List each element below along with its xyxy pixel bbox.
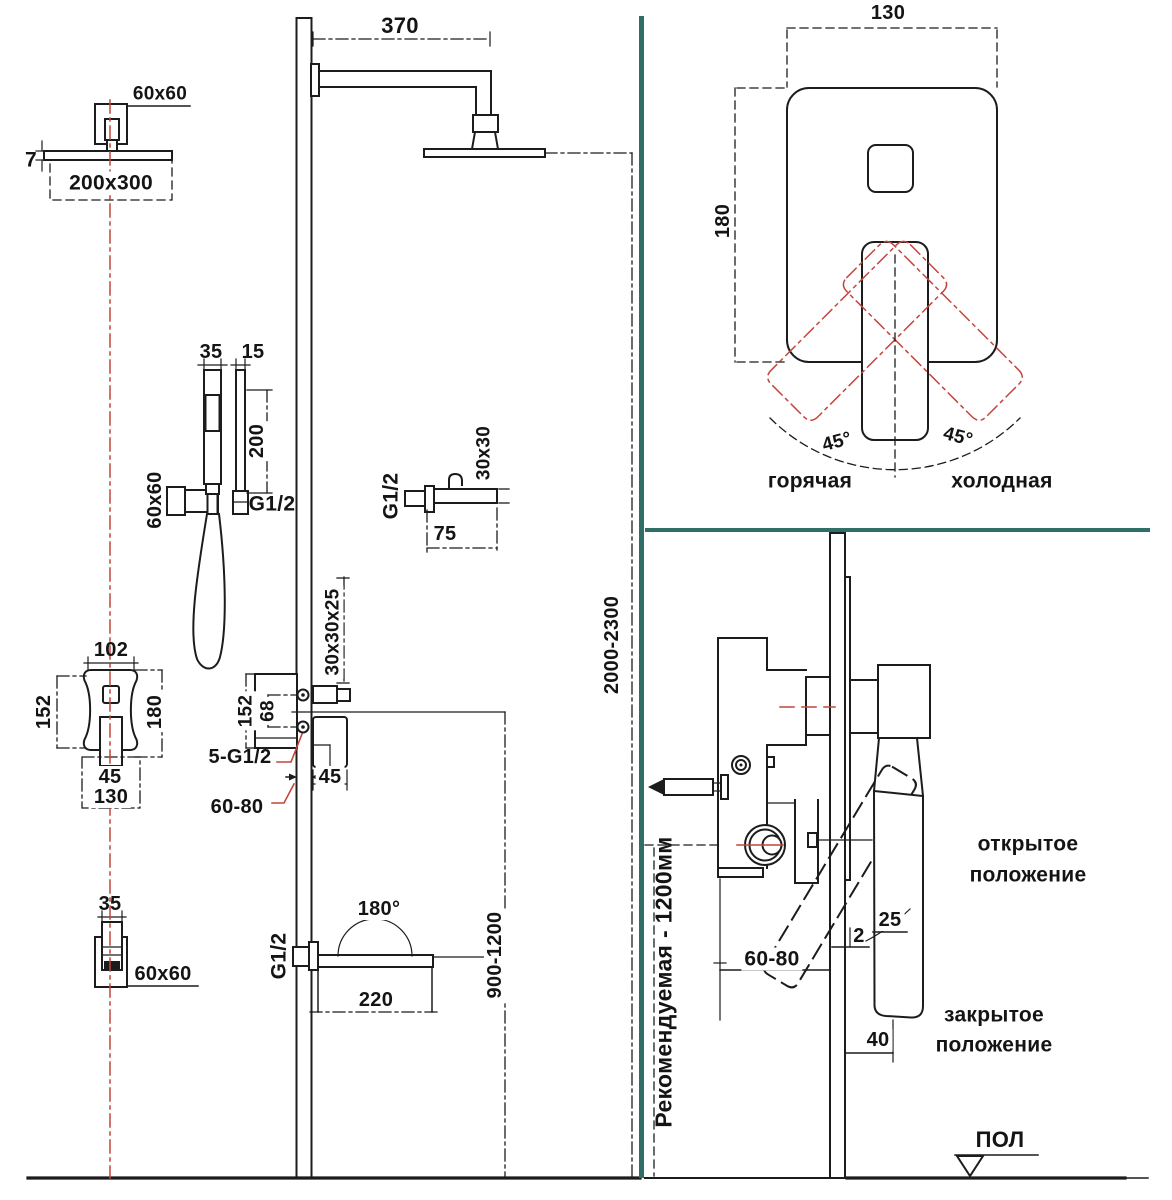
dim-handshower-width: 35 — [200, 342, 223, 362]
dim-handle-angle: 25 — [876, 909, 905, 931]
open-position-label-2: положение — [970, 865, 1087, 886]
dim-outlet-section: 30x30 — [474, 423, 495, 483]
dim-spout-height: 900-1200 — [484, 909, 506, 1002]
dim-spout-length: 220 — [356, 989, 396, 1011]
dim-spout-swivel: 180° — [355, 898, 404, 920]
dim-parked-holder: 60x60 — [134, 964, 191, 984]
horizontal-divider — [645, 528, 1150, 532]
dim-parked-width: 35 — [99, 894, 122, 914]
dim-side-connections: 5-G1/2 — [209, 747, 272, 767]
dim-front-left-height: 152 — [34, 695, 54, 729]
closed-position-label-1: закрытое — [944, 1005, 1044, 1026]
dim-outlet-thread: G1/2 — [381, 473, 402, 520]
dim-panel-height: 180 — [712, 201, 734, 241]
dim-bar-width: 15 — [242, 342, 265, 362]
dim-front-bottom-width: 130 — [91, 786, 131, 808]
dim-overhead-mount: 60x60 — [133, 85, 187, 104]
dim-arm-length: 370 — [381, 15, 419, 37]
dim-overall-height: 2000-2300 — [602, 596, 622, 694]
dim-spout-thread: G1/2 — [269, 933, 290, 980]
dim-outlet-length: 75 — [431, 523, 460, 545]
dim-side-height: 152 — [236, 692, 257, 731]
hot-water-label: горячая — [768, 471, 852, 492]
dim-side-depth: 45 — [316, 766, 345, 788]
shower-hose — [193, 514, 224, 669]
dim-side-section: 30x30x25 — [323, 586, 344, 679]
recommended-height-label: Рекомендуемая - 1200мм — [653, 836, 676, 1127]
dim-plate-gap: 2 — [853, 926, 864, 946]
dim-panel-width: 130 — [871, 3, 905, 23]
open-position-label-1: открытое — [978, 834, 1079, 855]
installation-diagram: 60x60 7 200x300 370 35 15 200 G1/2 60x60… — [0, 0, 1172, 1200]
dim-side-ports-gap: 68 — [258, 697, 279, 725]
dim-front-top-width: 102 — [94, 640, 128, 660]
trim-panel-view — [735, 28, 1026, 477]
cold-water-label: холодная — [951, 471, 1052, 492]
floor-label: ПОЛ — [976, 1129, 1025, 1151]
right-wall — [830, 533, 845, 1178]
dim-front-right-height: 180 — [144, 692, 166, 732]
vertical-divider — [639, 16, 644, 1178]
dim-front-spout-width: 45 — [96, 766, 125, 788]
dim-side-embed-depth: 60-80 — [211, 797, 264, 817]
dim-holder-size: 60x60 — [145, 471, 165, 528]
dim-bar-length: 200 — [246, 421, 268, 461]
dim-head-thickness: 7 — [25, 150, 37, 171]
dim-wall-embed: 60-80 — [741, 948, 802, 971]
closed-position-label-2: положение — [936, 1035, 1053, 1056]
dim-handle-offset: 40 — [864, 1029, 893, 1051]
dim-head-size: 200x300 — [66, 172, 156, 195]
dim-hose-thread: G1/2 — [249, 494, 296, 515]
left-wall — [297, 18, 312, 1178]
